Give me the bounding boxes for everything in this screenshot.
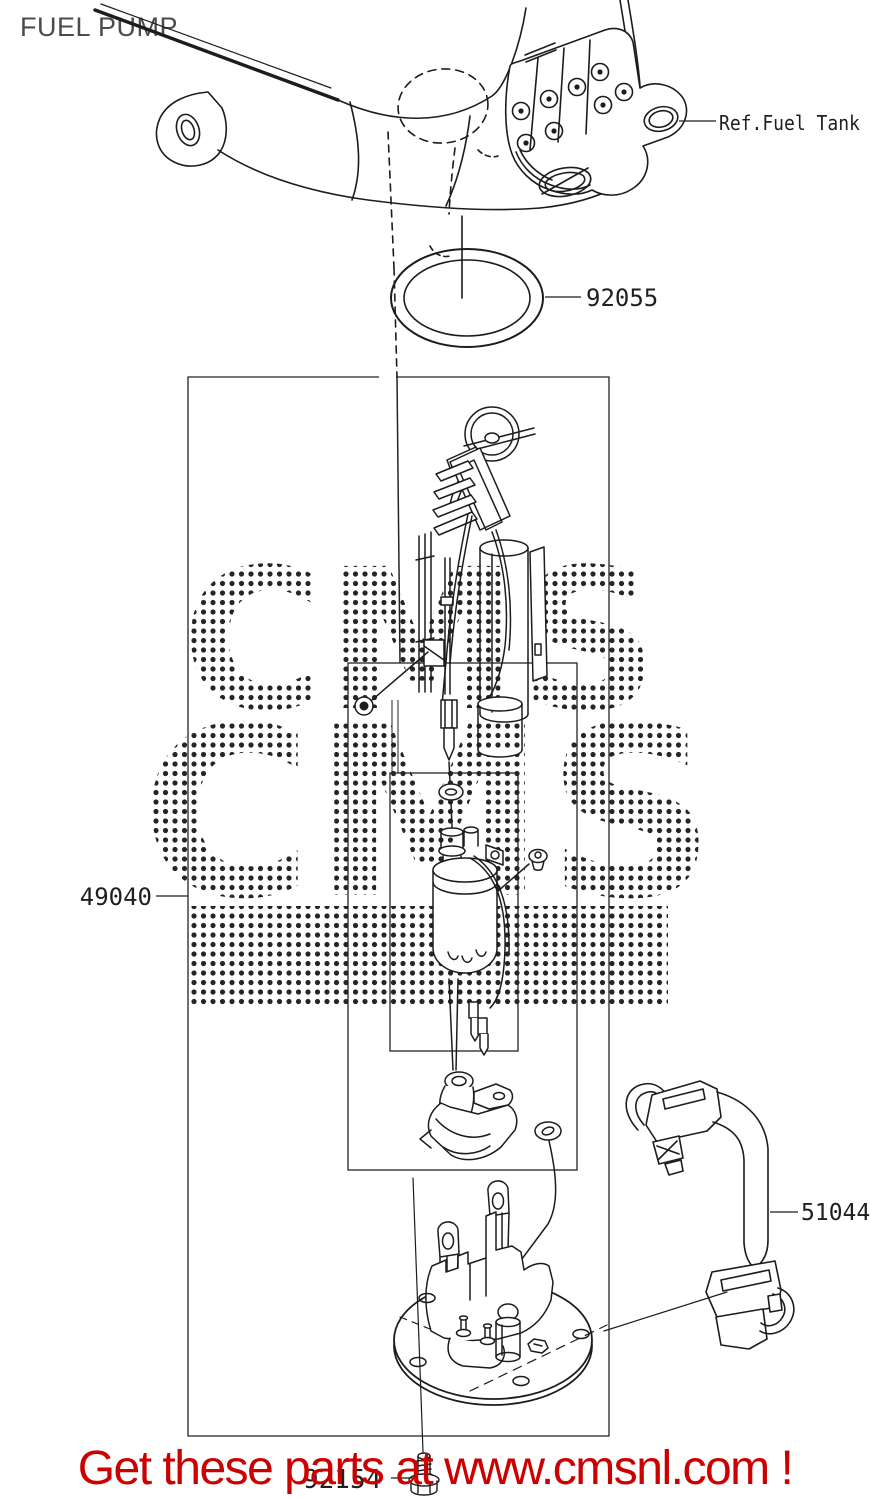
fuel-hose-51044-drawing bbox=[604, 1081, 794, 1349]
fuel-tank-drawing bbox=[95, 0, 687, 377]
watermark-band bbox=[188, 906, 668, 1006]
callout-49040-pump-assembly: 49040 bbox=[74, 883, 152, 911]
callout-92055-o-ring: 92055 bbox=[586, 284, 658, 312]
base-plate-drawing bbox=[394, 1178, 607, 1452]
callout-ref-fuel-tank: Ref.Fuel Tank bbox=[719, 111, 860, 135]
callout-51044-fuel-hose: 51044 bbox=[801, 1200, 870, 1226]
exploded-parts-diagram: CMS CMS bbox=[0, 0, 870, 1500]
o-ring-92055-drawing bbox=[391, 249, 543, 347]
parts-fiche-page: FUEL PUMP CMS CMS bbox=[0, 0, 870, 1500]
halftone-watermark: CMS CMS bbox=[140, 527, 716, 1006]
cmsnl-promo-banner[interactable]: Get these parts at www.cmsnl.com ! bbox=[0, 1441, 870, 1496]
